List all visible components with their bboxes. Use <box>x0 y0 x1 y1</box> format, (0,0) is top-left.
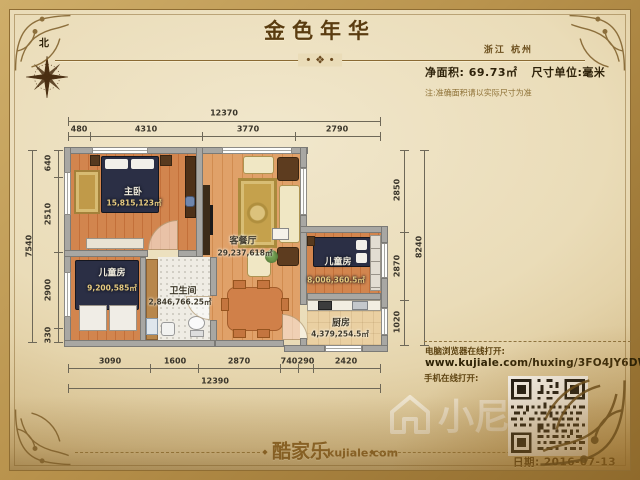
window <box>300 168 307 215</box>
dining-chair <box>257 280 270 289</box>
house-logo-icon <box>388 392 432 436</box>
room-name-kids-left: 儿童房 <box>98 266 125 279</box>
room-area-bathroom: 2,846,766.25㎡ <box>148 297 211 308</box>
dim-tick <box>380 364 381 373</box>
armchair-dark <box>277 157 299 181</box>
kitchen-sink <box>352 301 368 310</box>
dining-chair <box>221 298 229 311</box>
wall <box>210 257 217 296</box>
dim-top-seg: 2790 <box>326 125 348 134</box>
dim-tick <box>150 364 151 373</box>
wall <box>381 226 388 243</box>
watermark: 小尼 <box>388 388 510 440</box>
wardrobe <box>370 235 381 291</box>
dining-chair <box>233 329 246 338</box>
rug-master <box>74 170 100 214</box>
window <box>325 345 362 352</box>
footer-diamond-icon: ◆ <box>262 448 267 456</box>
dim-tick <box>68 117 69 126</box>
dim-bottom-seg: 290 <box>298 357 315 366</box>
dim-tick <box>54 252 63 253</box>
window <box>381 243 388 278</box>
wall <box>284 345 325 352</box>
room-area-kitchen: 4,379,254.5㎡ <box>311 329 369 340</box>
dim-right-seg: 2870 <box>393 255 402 277</box>
dim-tick <box>90 132 91 141</box>
desk-chair <box>185 196 195 207</box>
dim-top-seg: 4310 <box>135 125 157 134</box>
wall <box>64 250 148 257</box>
wall <box>196 147 203 257</box>
dim-line <box>68 121 380 122</box>
dim-bottom-seg: 2420 <box>335 357 357 366</box>
dim-tick <box>54 342 63 343</box>
net-area-value: 净面积: 69.73㎡ <box>425 66 518 79</box>
dim-left-seg: 640 <box>44 155 53 172</box>
wall <box>140 257 146 347</box>
floorplan-page: 金色年华 • ❖ • 浙江 杭州 净面积: 69.73㎡尺寸单位:毫米 注:准确… <box>0 0 640 480</box>
dim-right-seg: 2850 <box>393 179 402 201</box>
brand-domain: kujiale.com <box>327 447 398 460</box>
page-title: 金色年华 <box>264 15 376 45</box>
dim-tick <box>400 345 409 346</box>
dining-chair <box>281 298 289 311</box>
corner-flourish-icon <box>535 375 630 470</box>
dim-tick <box>380 117 381 126</box>
wall <box>381 278 388 308</box>
share-divider <box>424 341 631 342</box>
dim-line <box>68 388 380 389</box>
room-name-living: 客餐厅 <box>229 234 256 247</box>
area-note: 注:准确面积请以实际尺寸为准 <box>425 88 532 99</box>
washing-machine <box>146 318 158 335</box>
window <box>381 308 388 335</box>
dim-tick <box>68 384 69 393</box>
dim-tick <box>28 342 37 343</box>
room-area-kids-right: 8,006,360.5㎡ <box>307 275 365 286</box>
wall <box>300 226 388 233</box>
window <box>64 172 71 215</box>
dim-top-total: 12370 <box>210 109 238 118</box>
dim-top-seg: 480 <box>71 125 88 134</box>
bed-foot-panel <box>109 305 137 331</box>
dim-bottom-seg: 740 <box>281 357 298 366</box>
desk-master <box>185 156 196 218</box>
wall <box>215 340 284 347</box>
dim-top-seg: 3770 <box>237 125 259 134</box>
dining-chair <box>233 280 246 289</box>
room-name-bathroom: 卫生间 <box>169 284 196 297</box>
dim-left-total: 7540 <box>25 235 34 257</box>
dim-line <box>58 150 59 342</box>
dim-left-seg: 2510 <box>44 203 53 225</box>
dim-tick <box>295 132 296 141</box>
nightstand <box>307 236 315 246</box>
room-name-master: 主卧 <box>124 185 142 198</box>
room-area-kids-left: 9,200,585㎡ <box>87 283 137 294</box>
dim-tick <box>54 177 63 178</box>
corner-flourish-icon <box>12 12 74 74</box>
tv <box>210 205 213 235</box>
dim-tick <box>54 150 63 151</box>
toilet-tank <box>190 330 204 337</box>
dim-tick <box>420 150 429 151</box>
loveseat <box>243 156 274 174</box>
dim-tick <box>68 364 69 373</box>
dim-line <box>404 150 405 345</box>
brand-logo: 酷家乐 <box>272 437 329 464</box>
dim-tick <box>68 132 69 141</box>
wall <box>307 293 381 300</box>
pillow <box>356 253 367 263</box>
wall <box>300 147 307 168</box>
dim-tick <box>198 364 199 373</box>
dim-tick <box>380 132 381 141</box>
room-name-kids-right: 儿童房 <box>324 255 351 268</box>
corner-flourish-icon <box>566 12 628 74</box>
dim-line <box>424 150 425 345</box>
tv-cabinet <box>203 185 210 255</box>
footer-diamond-icon: ◆ <box>369 448 374 456</box>
wall <box>64 340 215 347</box>
dim-tick <box>28 150 37 151</box>
bathroom-sink <box>161 322 175 336</box>
corner-flourish-icon <box>12 406 74 468</box>
dim-line <box>68 368 380 369</box>
room-area-master: 15,815,123㎡ <box>107 198 162 209</box>
nightstand <box>160 155 172 166</box>
dim-left-seg: 330 <box>44 327 53 344</box>
watermark-text: 小尼 <box>438 388 510 440</box>
nightstand <box>90 155 100 166</box>
wall <box>362 345 388 352</box>
dim-tick <box>202 132 203 141</box>
dim-bottom-seg: 1600 <box>164 357 186 366</box>
dim-tick <box>400 150 409 151</box>
project-location: 浙江 杭州 <box>484 43 533 56</box>
dim-right-total: 8240 <box>415 236 424 258</box>
dresser-master <box>86 238 144 249</box>
divider-ornament-icon: • ❖ • <box>298 54 342 67</box>
dim-line <box>68 136 380 137</box>
share-url: www.kujiale.com/huxing/3FO4JY6DW259 <box>425 357 640 369</box>
dim-tick <box>400 300 409 301</box>
pc-open-label: 电脑浏览器在线打开: <box>425 345 505 357</box>
window <box>222 147 292 154</box>
dim-left-seg: 2900 <box>44 279 53 301</box>
pillow <box>105 159 128 169</box>
dim-bottom-seg: 3090 <box>99 357 121 366</box>
dining-chair <box>257 329 270 338</box>
stove <box>318 301 332 310</box>
window <box>64 272 71 317</box>
pillow <box>131 159 154 169</box>
ac-unit <box>272 228 289 240</box>
pillow <box>356 240 367 250</box>
footer-dash <box>75 452 260 453</box>
window <box>92 147 148 154</box>
room-area-living: 29,237,618㎡ <box>218 248 273 259</box>
dim-tick <box>54 328 63 329</box>
dim-tick <box>400 232 409 233</box>
dim-bottom-seg: 2870 <box>228 357 250 366</box>
room-name-kitchen: 厨房 <box>332 316 350 329</box>
bed-foot-panel <box>79 305 107 331</box>
armchair-dark <box>277 247 299 266</box>
dining-table <box>227 287 283 331</box>
mobile-open-label: 手机在线打开: <box>424 372 478 384</box>
dim-bottom-total: 12390 <box>201 377 229 386</box>
dim-right-seg: 1020 <box>393 311 402 333</box>
dim-tick <box>380 384 381 393</box>
